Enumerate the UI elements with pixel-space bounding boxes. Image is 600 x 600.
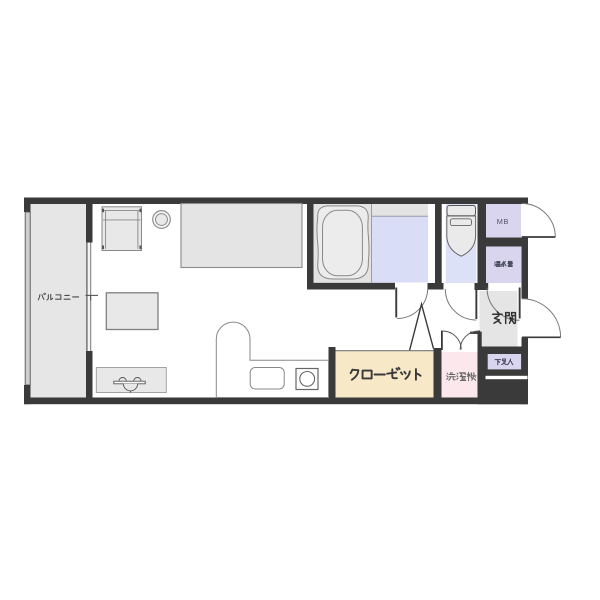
svg-text:MB: MB [497, 217, 509, 226]
